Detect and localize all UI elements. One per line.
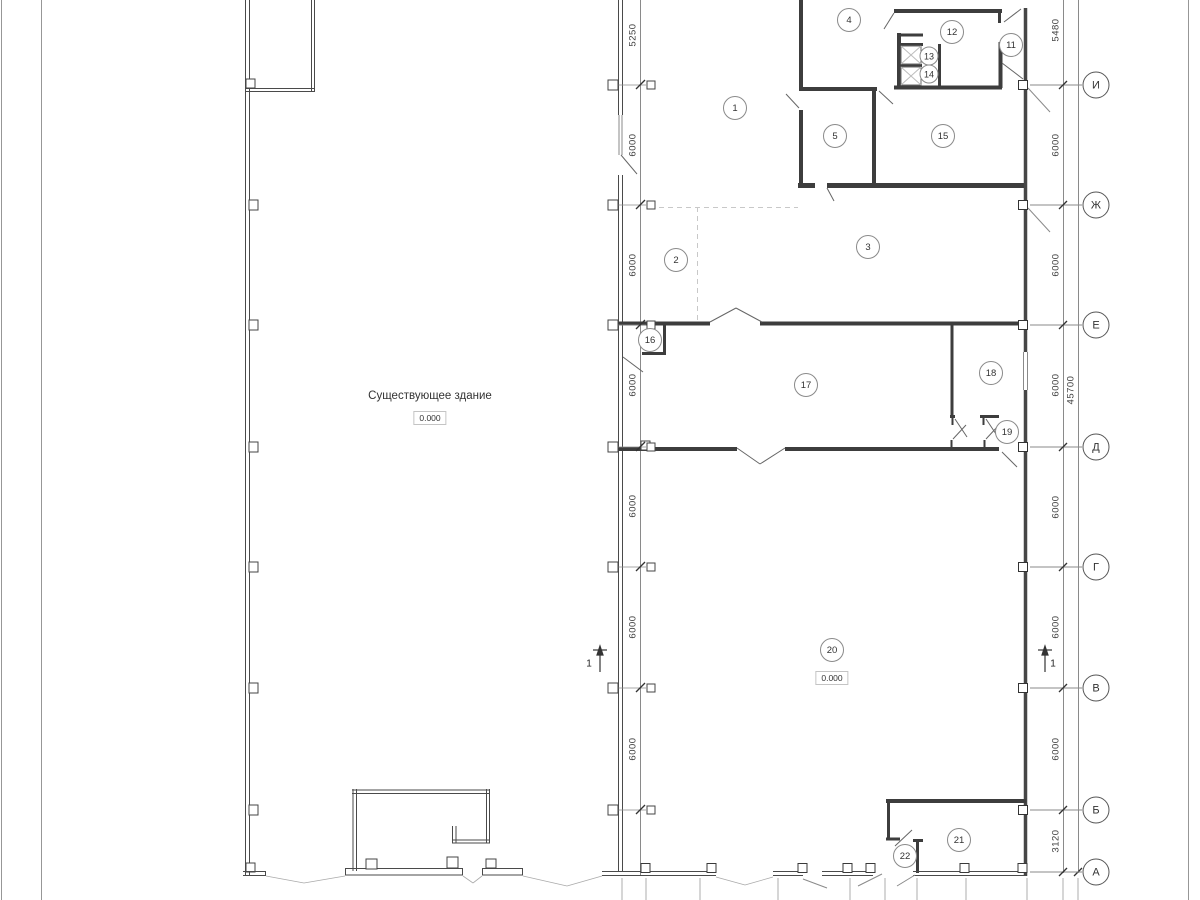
- dim-right-0: 5480: [1051, 18, 1062, 41]
- axis-bubble-А: А: [1083, 859, 1110, 886]
- room-bubble-18: 18: [979, 361, 1003, 385]
- existing-building-walls: [243, 0, 523, 876]
- room-bubble-20: 20: [820, 638, 844, 662]
- room-bubble-21: 21: [947, 828, 971, 852]
- dim-right-7: 3120: [1051, 829, 1062, 852]
- floorplan-sheet: Существующее здание 0.000 0.000 12345111…: [0, 0, 1200, 900]
- dim-left-4: 6000: [628, 494, 639, 517]
- dim-overall: 45700: [1066, 376, 1077, 405]
- axis-bubble-Д: Д: [1083, 434, 1110, 461]
- room-bubble-17: 17: [794, 373, 818, 397]
- sheet-border: [2, 0, 1189, 900]
- room-bubble-22: 22: [893, 844, 917, 868]
- dim-left-6: 6000: [628, 737, 639, 760]
- room-bubble-19: 19: [995, 420, 1019, 444]
- extension-lines: [622, 878, 1078, 900]
- dim-lines-right: [1064, 0, 1079, 873]
- dim-left-0: 5250: [628, 23, 639, 46]
- room20-elevation: 0.000: [815, 671, 848, 685]
- dim-right-3: 6000: [1051, 373, 1062, 396]
- room-bubble-15: 15: [931, 124, 955, 148]
- dim-left-3: 6000: [628, 373, 639, 396]
- dim-left-1: 6000: [628, 133, 639, 156]
- axis-bubble-В: В: [1083, 675, 1110, 702]
- existing-building-elevation: 0.000: [413, 411, 446, 425]
- floorplan-linework: [0, 0, 1200, 900]
- site-break-lines: [266, 876, 773, 886]
- core-door-swings: [786, 9, 1023, 201]
- room-bubble-5: 5: [823, 124, 847, 148]
- room-bubble-14: 14: [920, 65, 939, 84]
- dim-right-6: 6000: [1051, 737, 1062, 760]
- south-door-swings: [803, 874, 915, 888]
- wall-axis-e: [618, 308, 1026, 324]
- dim-left-2: 6000: [628, 253, 639, 276]
- room-bubble-12: 12: [940, 20, 964, 44]
- axis-bubble-Ж: Ж: [1083, 192, 1110, 219]
- room-bubble-11: 11: [999, 33, 1023, 57]
- room-bubble-1: 1: [723, 96, 747, 120]
- room-bubble-4: 4: [837, 8, 861, 32]
- existing-building-label: Существующее здание: [368, 390, 492, 402]
- axis-bubble-Б: Б: [1083, 797, 1110, 824]
- dim-right-4: 6000: [1051, 495, 1062, 518]
- dim-right-5: 6000: [1051, 615, 1062, 638]
- dim-left-5: 6000: [628, 615, 639, 638]
- room-bubble-16: 16: [638, 328, 662, 352]
- core-walls: [798, 0, 1026, 186]
- axis-bubble-И: И: [1083, 72, 1110, 99]
- dim-right-1: 6000: [1051, 133, 1062, 156]
- room-bubble-2: 2: [664, 248, 688, 272]
- room-bubble-3: 3: [856, 235, 880, 259]
- axis-bubble-Г: Г: [1083, 554, 1110, 581]
- axis-bubble-Е: Е: [1083, 312, 1110, 339]
- wall-axis-d: [608, 425, 1017, 467]
- room-bubble-13: 13: [920, 47, 939, 66]
- section-mark-label-1: 1: [1050, 659, 1056, 670]
- section-mark-label-0: 1: [586, 659, 592, 670]
- dim-right-2: 6000: [1051, 253, 1062, 276]
